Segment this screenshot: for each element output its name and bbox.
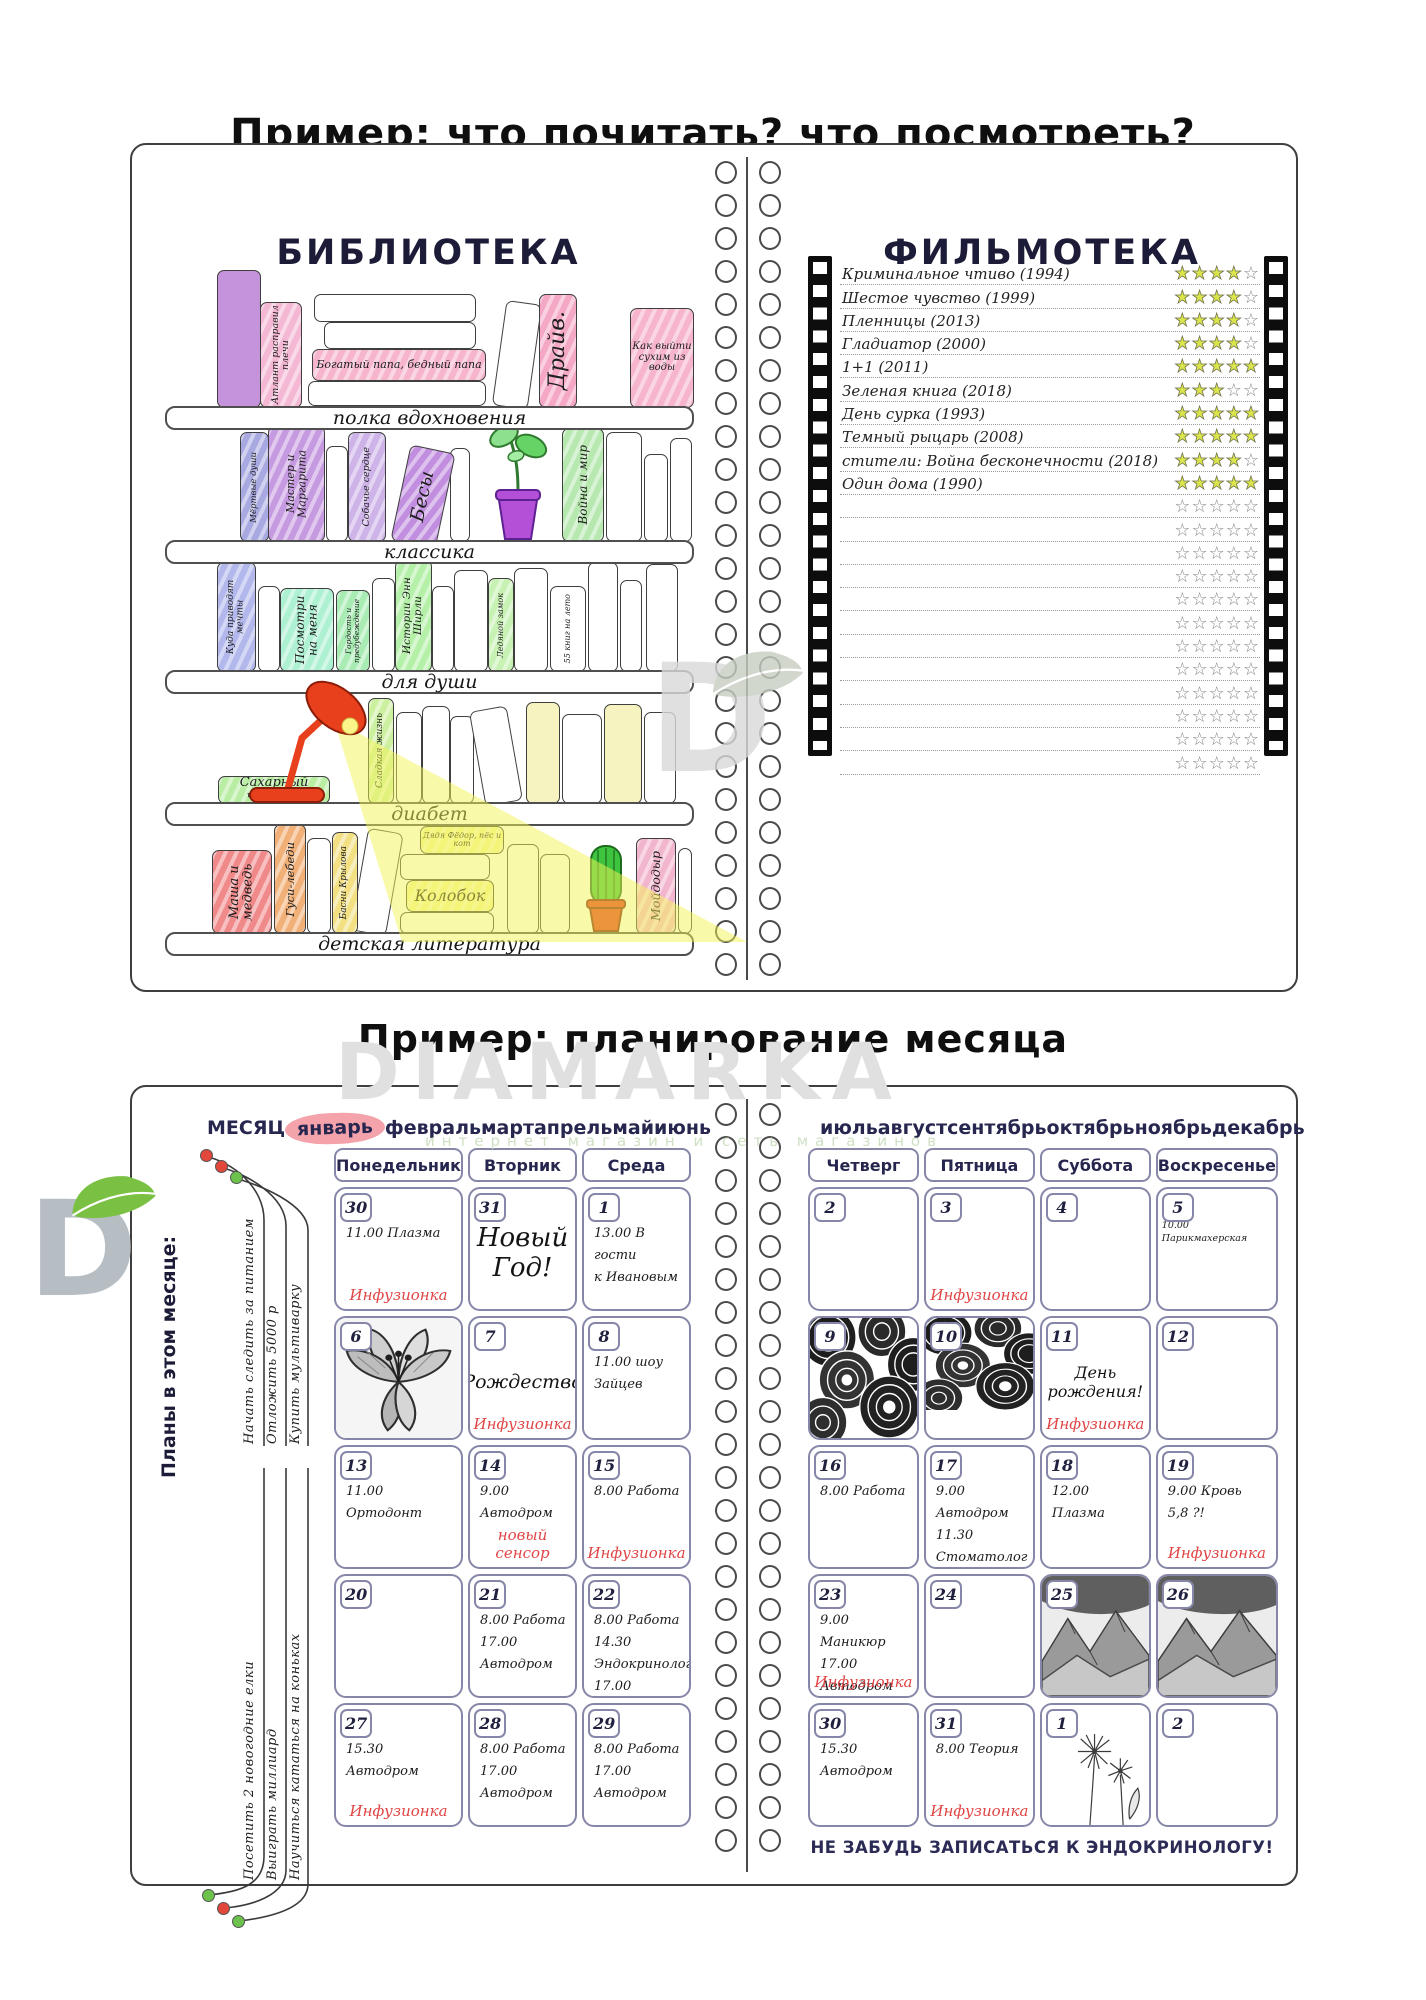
cactus-icon [580,842,632,934]
day-header: Понедельник [334,1148,463,1182]
rating-stars: ★★★★☆ [1174,451,1260,471]
shelf-bar: классика [165,540,694,564]
goal-dot [230,1171,243,1184]
star-outline-icon: ☆ [1174,659,1191,680]
star-outline-icon: ☆ [1226,589,1243,610]
diamarka-leaf-logo: D [28,1172,158,1317]
book-spine: Война и мир [562,428,604,542]
book-spine: Сладкая жизнь [368,698,394,804]
star-outline-icon: ☆ [1191,753,1208,774]
star-icon: ★ [1209,426,1226,447]
diamarka-logo-watermark: D [648,645,823,810]
spiral-hole [715,887,737,910]
filmstrip-right-icon [1264,256,1288,756]
book-title: Как выйти сухим из воды [631,342,693,374]
book-spine [450,716,474,804]
spiral-hole [759,491,781,514]
spiral-hole [715,524,737,547]
calendar-cell: 318.00 ТеорияИнфузионка [924,1703,1035,1827]
star-icon: ★ [1191,380,1208,401]
spiral-hole [759,1202,781,1225]
day-number: 4 [1046,1193,1078,1222]
book-spine: Дядя Фёдор, пёс и кот [420,826,504,854]
spiral-hole [715,1301,737,1324]
cell-accent: Инфузионка [926,1802,1033,1820]
spiral-hole [715,458,737,481]
day-header: Вторник [468,1148,577,1182]
spiral-hole [715,1235,737,1258]
star-outline-icon: ☆ [1209,706,1226,727]
film-row: ☆☆☆☆☆ [840,495,1260,518]
star-outline-icon: ☆ [1174,566,1191,587]
star-icon: ★ [1191,356,1208,377]
star-outline-icon: ☆ [1174,496,1191,517]
book-spine [454,570,488,672]
book-spine [258,586,280,672]
cell-entry: 8.00 Работа [594,1610,685,1632]
spiral-hole [715,161,737,184]
month-item: октябрь [1047,1117,1135,1139]
star-outline-icon: ☆ [1209,543,1226,564]
day-number: 16 [814,1451,846,1480]
day-number: 22 [588,1580,620,1609]
star-icon: ★ [1174,333,1191,354]
page-divider [746,1099,748,1872]
spiral-hole [759,227,781,250]
calendar-cell: 3011.00 ПлазмаИнфузионка [334,1187,463,1311]
spiral-hole [715,326,737,349]
book-spine [507,844,539,934]
film-row: День сурка (1993)★★★★★ [840,402,1260,425]
star-outline-icon: ☆ [1226,496,1243,517]
spiral-hole [715,1433,737,1456]
book-spine: Мёртвые души [240,432,269,542]
cell-accent: Инфузионка [470,1415,575,1433]
calendar-cell: 26 [1156,1574,1278,1698]
rating-stars: ★★★★★ [1174,474,1260,494]
spiral-hole [715,260,737,283]
calendar-left-page: ПонедельникВторникСреда3011.00 ПлазмаИнф… [334,1148,691,1827]
spiral-hole [715,194,737,217]
rating-stars: ★★★★☆ [1174,288,1260,308]
star-outline-icon: ☆ [1243,496,1260,517]
book-spine [326,446,348,542]
spiral-hole [715,1796,737,1819]
page: Пример: что почитать? что посмотреть? БИ… [0,0,1426,2000]
goal-text: Купить мультиварку [288,1188,305,1444]
star-outline-icon: ☆ [1243,287,1260,308]
film-row: Криминальное чтиво (1994)★★★★☆ [840,262,1260,285]
film-row: ☆☆☆☆☆ [840,635,1260,658]
star-outline-icon: ☆ [1191,520,1208,541]
book-title: Богатый папа, бедный папа [316,359,481,371]
day-number: 31 [930,1709,962,1738]
day-number: 30 [340,1193,372,1222]
day-number: 23 [814,1580,846,1609]
book-spine [422,706,450,804]
book-spine [324,322,476,349]
rating-stars: ☆☆☆☆☆ [1174,567,1260,587]
rating-stars: ★★★★★ [1174,427,1260,447]
star-outline-icon: ☆ [1209,496,1226,517]
cell-entry: 15.30 Автодром [820,1739,913,1783]
calendar-right-page: ЧетвергПятницаСубботаВоскресенье23Инфузи… [808,1148,1278,1827]
star-outline-icon: ☆ [1226,683,1243,704]
star-icon: ★ [1243,356,1260,377]
cell-entry: 17.00 Автодром [594,1676,685,1698]
spiral-hole [715,293,737,316]
plans-title: Планы в этом месяце: [158,1238,188,1478]
star-outline-icon: ☆ [1174,706,1191,727]
cell-entry: 8.00 Работа [480,1739,571,1761]
film-row: ☆☆☆☆☆ [840,681,1260,704]
spiral-hole [759,1433,781,1456]
film-row: ☆☆☆☆☆ [840,588,1260,611]
rating-stars: ★★★★★ [1174,357,1260,377]
spiral-hole [759,1268,781,1291]
cell-entry: 5,8 ?! [1168,1503,1272,1525]
star-outline-icon: ☆ [1243,263,1260,284]
rating-stars: ☆☆☆☆☆ [1174,521,1260,541]
film-row: Шестое чувство (1999)★★★★☆ [840,285,1260,308]
star-outline-icon: ☆ [1226,636,1243,657]
month-item: декабрь [1212,1117,1305,1139]
book-title: Сладкая жизнь [376,713,385,788]
star-outline-icon: ☆ [1191,706,1208,727]
calendar-cell: 12 [1156,1316,1278,1440]
star-outline-icon: ☆ [1209,659,1226,680]
spiral-hole [715,1631,737,1654]
star-icon: ★ [1209,450,1226,471]
spiral-hole [715,227,737,250]
book-spine [307,838,331,934]
day-number: 6 [340,1322,372,1351]
star-icon: ★ [1191,450,1208,471]
day-header: Четверг [808,1148,919,1182]
spiral-hole [759,260,781,283]
book-spine [396,712,422,804]
film-row: Гладиатор (2000)★★★★☆ [840,332,1260,355]
film-row: ☆☆☆☆☆ [840,542,1260,565]
book-title: Война и мир [577,445,590,525]
calendar-cell: 1311.00 Ортодонт [334,1445,463,1569]
day-number: 31 [474,1193,506,1222]
day-number: 27 [340,1709,372,1738]
cell-entry: 9.00 Кровь [1168,1481,1272,1503]
spiral-hole [759,1499,781,1522]
rating-stars: ☆☆☆☆☆ [1174,497,1260,517]
calendar-cell: 31Новый Год! [468,1187,577,1311]
star-icon: ★ [1191,473,1208,494]
calendar-cell: 239.00 Маникюр17.00 АвтодромИнфузионка [808,1574,919,1698]
spiral-hole [759,326,781,349]
spiral-hole [715,1169,737,1192]
spiral-hole [759,392,781,415]
star-icon: ★ [1209,287,1226,308]
calendar-cell: 179.00 Автодром11.30 Стоматолог [924,1445,1035,1569]
calendar-cell: 2 [1156,1703,1278,1827]
star-outline-icon: ☆ [1209,566,1226,587]
film-title: Пленницы (2013) [842,312,980,330]
star-icon: ★ [1209,356,1226,377]
spiral-hole [715,1829,737,1852]
spiral-hole [759,161,781,184]
star-icon: ★ [1174,310,1191,331]
planner-spread: МЕСЯЦ январьфевральмартапрельмайиюнь июл… [130,1085,1298,1886]
tagline-watermark: интернет магазин и сеть магазинов [425,1132,943,1150]
spiral-hole [759,1796,781,1819]
day-header: Пятница [924,1148,1035,1182]
star-outline-icon: ☆ [1243,613,1260,634]
book-title: Куда приводят мечты [227,563,246,671]
star-icon: ★ [1226,473,1243,494]
spiral-hole [715,1499,737,1522]
spiral-hole [759,1334,781,1357]
shelf-bar: диабет [165,802,694,826]
day-number: 30 [814,1709,846,1738]
book-spine: Как выйти сухим из воды [630,308,694,408]
calendar-cell: 2715.30 АвтодромИнфузионка [334,1703,463,1827]
calendar-cell: 228.00 Работа14.30 Эндокринолог17.00 Авт… [582,1574,691,1698]
book-spine: Сахарный человек [218,776,330,804]
star-icon: ★ [1226,426,1243,447]
spiral-hole [715,821,737,844]
spiral-hole [715,1763,737,1786]
spiral-hole [715,1466,737,1489]
calendar-cell: 7РождествоИнфузионка [468,1316,577,1440]
goal-dot [202,1889,215,1902]
cell-entry: 8.00 Работа [480,1610,571,1632]
book-title: Гуси-лебеди [284,842,296,917]
cell-accent: Инфузионка [1158,1544,1276,1562]
cell-accent: Инфузионка [336,1286,461,1304]
book-spine: Куда приводят мечты [217,562,256,672]
star-outline-icon: ☆ [1243,729,1260,750]
star-outline-icon: ☆ [1174,543,1191,564]
book-spine: Гордость и предубеждение [336,590,370,672]
book-title: Гордость и предубеждение [345,591,361,671]
star-outline-icon: ☆ [1226,543,1243,564]
calendar-cell: 3Инфузионка [924,1187,1035,1311]
day-number: 26 [1162,1580,1194,1609]
book-spine [217,270,261,408]
film-row: стители: Война бесконечности (2018)★★★★☆ [840,448,1260,471]
book-spine [604,704,642,804]
book-title: Драйв. [546,311,569,390]
spiral-hole [759,1631,781,1654]
cell-entry: 8.00 Работа [594,1481,685,1503]
day-number: 8 [588,1322,620,1351]
rating-stars: ★★★★☆ [1174,311,1260,331]
book-spine: Собачье сердце [348,432,386,542]
calendar-cell: 3015.30 Автодром [808,1703,919,1827]
star-outline-icon: ☆ [1209,729,1226,750]
rating-stars: ★★★★★ [1174,404,1260,424]
film-row: Зеленая книга (2018)★★★☆☆ [840,378,1260,401]
spiral-hole [759,1532,781,1555]
day-number: 17 [930,1451,962,1480]
spiral-hole [759,1400,781,1423]
star-icon: ★ [1243,426,1260,447]
day-number: 20 [340,1580,372,1609]
cell-entry: 10.00 Парикмахерская [1162,1219,1274,1246]
star-icon: ★ [1209,263,1226,284]
star-icon: ★ [1191,287,1208,308]
spiral-hole [759,887,781,910]
book-title: Истории Энн Ширли [402,561,424,671]
spiral-hole [715,1598,737,1621]
cell-entry: 9.00 Автодром [936,1481,1029,1525]
cell-entry: 17.00 Автодром [594,1761,685,1805]
day-number: 1 [588,1193,620,1222]
spiral-hole [715,1565,737,1588]
film-title: Зеленая книга (2018) [842,382,1012,400]
calendar-cell: 1812.00 Плазма [1040,1445,1151,1569]
film-title: 1+1 (2011) [842,358,928,376]
film-row: ☆☆☆☆☆ [840,705,1260,728]
star-outline-icon: ☆ [1226,659,1243,680]
calendar-cell: 20 [334,1574,463,1698]
goal-text: Выиграть миллиард [265,1468,282,1880]
book-spine [492,300,542,410]
leaf-icon [708,647,808,699]
star-icon: ★ [1226,333,1243,354]
film-row: ☆☆☆☆☆ [840,565,1260,588]
book-spine: Бесы [390,444,455,549]
book-spine [670,438,692,542]
day-header: Среда [582,1148,691,1182]
rating-stars: ☆☆☆☆☆ [1174,544,1260,564]
spiral-hole [715,1367,737,1390]
day-number: 7 [474,1322,506,1351]
day-number: 3 [930,1193,962,1222]
cell-entry: 17.00 Автодром [480,1761,571,1805]
book-title: Мастер и Маргарита [285,427,308,541]
film-row: ☆☆☆☆☆ [840,751,1260,774]
shelf-label: детская литература [310,935,549,954]
star-outline-icon: ☆ [1191,496,1208,517]
book-title: Ледяной замок [497,593,505,658]
star-outline-icon: ☆ [1191,659,1208,680]
spiral-hole [715,1202,737,1225]
star-icon: ★ [1226,356,1243,377]
book-title: Мойдодыр [649,851,662,921]
rating-stars: ★★★★☆ [1174,334,1260,354]
cell-entry: 9.00 Автодром [480,1481,571,1525]
page-divider [746,157,748,980]
book-spine: Богатый папа, бедный папа [312,349,486,381]
spiral-hole [715,1268,737,1291]
book-spine: Колобок [406,880,494,912]
book-title: Атлант расправил плечи [271,303,291,407]
calendar-cell: 149.00 Автодромновый сенсор [468,1445,577,1569]
spiral-hole [759,1367,781,1390]
star-outline-icon: ☆ [1243,566,1260,587]
star-icon: ★ [1209,333,1226,354]
spiral-hole [759,1664,781,1687]
day-number: 21 [474,1580,506,1609]
book-spine [372,578,395,672]
book-spine [644,454,668,542]
spiral-hole [759,1466,781,1489]
spiral-hole [759,1565,781,1588]
star-outline-icon: ☆ [1174,753,1191,774]
spiral-hole [759,458,781,481]
day-number: 19 [1162,1451,1194,1480]
day-number: 28 [474,1709,506,1738]
calendar-cell: 218.00 Работа17.00 Автодром [468,1574,577,1698]
star-icon: ★ [1174,450,1191,471]
book-spine [562,714,602,804]
brand-watermark: DIAMARKA [335,1028,904,1118]
spiral-hole [759,1169,781,1192]
cell-entry: 11.00 Ортодонт [346,1481,457,1525]
book-spine: Мастер и Маргарита [268,426,325,542]
star-outline-icon: ☆ [1226,520,1243,541]
star-icon: ★ [1226,450,1243,471]
rating-stars: ☆☆☆☆☆ [1174,754,1260,774]
spiral-hole [715,1730,737,1753]
spiral-hole [715,491,737,514]
leaf-icon [68,1172,160,1220]
cell-entry: 17.00 Автодром [480,1632,571,1676]
star-icon: ★ [1174,287,1191,308]
book-spine: Маша и медведь [212,850,272,934]
month-word: МЕСЯЦ [207,1117,285,1139]
day-number: 14 [474,1451,506,1480]
book-spine [432,586,454,672]
star-outline-icon: ☆ [1243,706,1260,727]
spiral-hole [715,359,737,382]
star-icon: ★ [1191,310,1208,331]
spiral-hole [759,425,781,448]
spiral-hole [759,920,781,943]
shelf-bar: для души [165,670,694,694]
day-number: 10 [930,1322,962,1351]
star-outline-icon: ☆ [1226,566,1243,587]
star-icon: ★ [1174,426,1191,447]
spiral-hole [759,524,781,547]
cell-entry: 11.30 Стоматолог [936,1525,1029,1569]
star-outline-icon: ☆ [1174,729,1191,750]
spiral-hole [715,1664,737,1687]
spiral-hole [715,953,737,976]
star-icon: ★ [1174,380,1191,401]
star-outline-icon: ☆ [1174,636,1191,657]
book-spine: Истории Энн Ширли [395,560,432,672]
library-title: БИБЛИОТЕКА [165,233,692,273]
cell-entry: 13.00 В гости [594,1223,685,1267]
shelf-bar: детская литература [165,932,694,956]
film-title: Шестое чувство (1999) [842,289,1035,307]
film-title: Темный рыцарь (2008) [842,428,1024,446]
book-spine [526,702,560,804]
rating-stars: ☆☆☆☆☆ [1174,614,1260,634]
film-title: Гладиатор (2000) [842,335,986,353]
spiral-hole [759,953,781,976]
film-row: ☆☆☆☆☆ [840,611,1260,634]
star-outline-icon: ☆ [1243,589,1260,610]
star-outline-icon: ☆ [1243,520,1260,541]
book-spine [400,854,490,880]
star-outline-icon: ☆ [1209,683,1226,704]
book-spine [314,294,476,322]
spiral-hole [759,1598,781,1621]
calendar-cell: 24 [924,1574,1035,1698]
star-icon: ★ [1209,473,1226,494]
star-outline-icon: ☆ [1209,613,1226,634]
star-outline-icon: ☆ [1243,636,1260,657]
